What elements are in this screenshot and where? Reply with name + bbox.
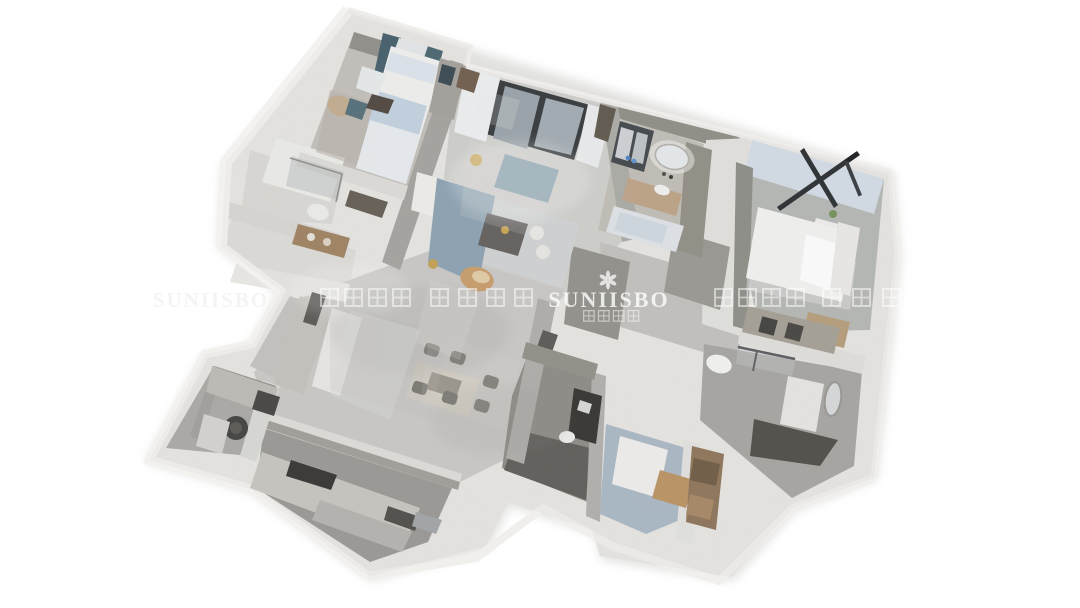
svg-text:SUNIISBO: SUNIISBO <box>153 288 269 312</box>
svg-text:SUNIISBO: SUNIISBO <box>548 287 669 312</box>
